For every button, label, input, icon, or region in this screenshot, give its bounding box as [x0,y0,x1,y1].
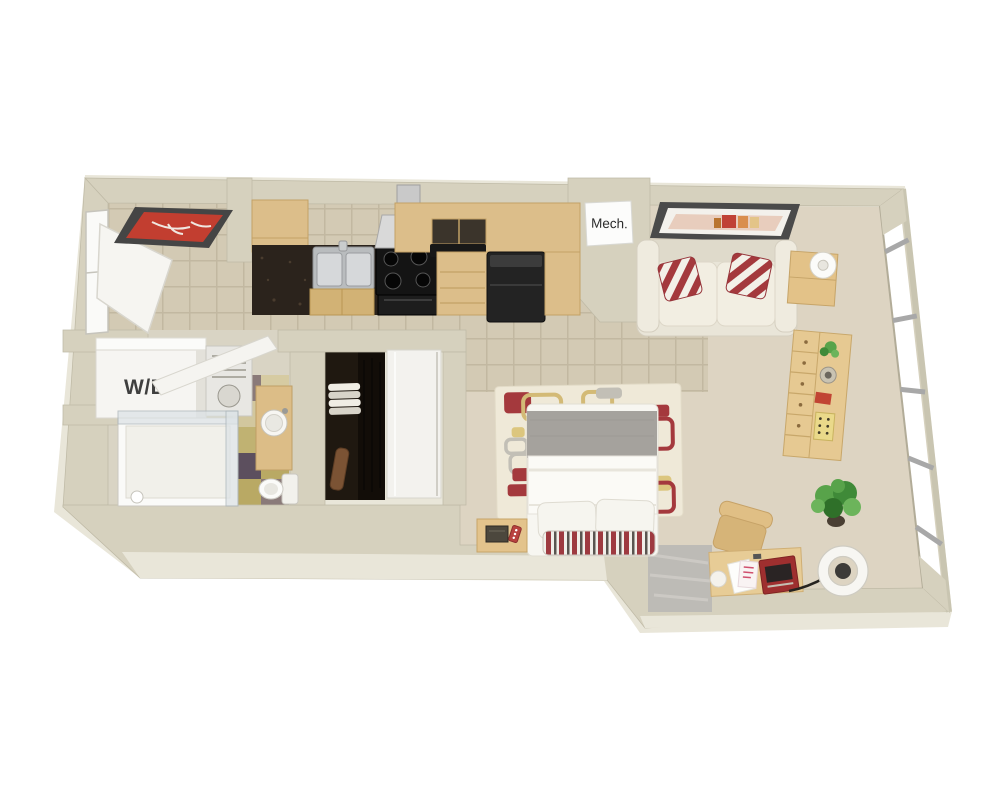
bed-striped-pillows [543,531,655,555]
kitchen-sink [313,241,374,290]
upper-cabinet-run [395,203,580,252]
wall-stub-entry-kitchen [227,178,252,262]
upper-cabinet-left [252,200,308,252]
shower-glass-side [226,411,238,506]
concrete-floor-patch [648,545,712,612]
vanity [256,386,292,470]
desk-phone [753,554,761,559]
nightstand-gadget [486,526,508,542]
wall-closet-right [443,352,466,505]
floor-plan-canvas: Mech. [0,0,1000,800]
faucet [339,241,347,251]
closet-door [387,350,441,498]
shower [118,411,238,506]
desk-plate [710,571,727,588]
mechanical-closet: Mech. [585,201,633,246]
wall-bath-closet-top [278,330,466,352]
red-laptop [759,556,799,595]
striped-pillow-right [725,252,772,299]
kitchen [252,185,580,322]
dresser-dotted-box [814,412,835,441]
mech-label: Mech. [591,216,628,232]
nightstand [477,519,527,552]
vanity-faucet [282,408,288,414]
sofa-wall-art [650,202,800,242]
oven-front [378,295,438,315]
dresser-console [783,330,852,461]
sofa [637,240,797,336]
dresser-red-box [814,392,831,405]
side-table [787,250,838,306]
floor-plan-svg: Mech. [0,0,1000,800]
cabinet-right-of-fridge [545,252,580,315]
shower-drain [131,491,143,503]
bed [527,404,658,556]
shower-glass-top [118,411,238,424]
refrigerator [487,252,545,322]
desk-paper-pink [738,561,758,588]
bed-gray-blanket [527,411,657,458]
